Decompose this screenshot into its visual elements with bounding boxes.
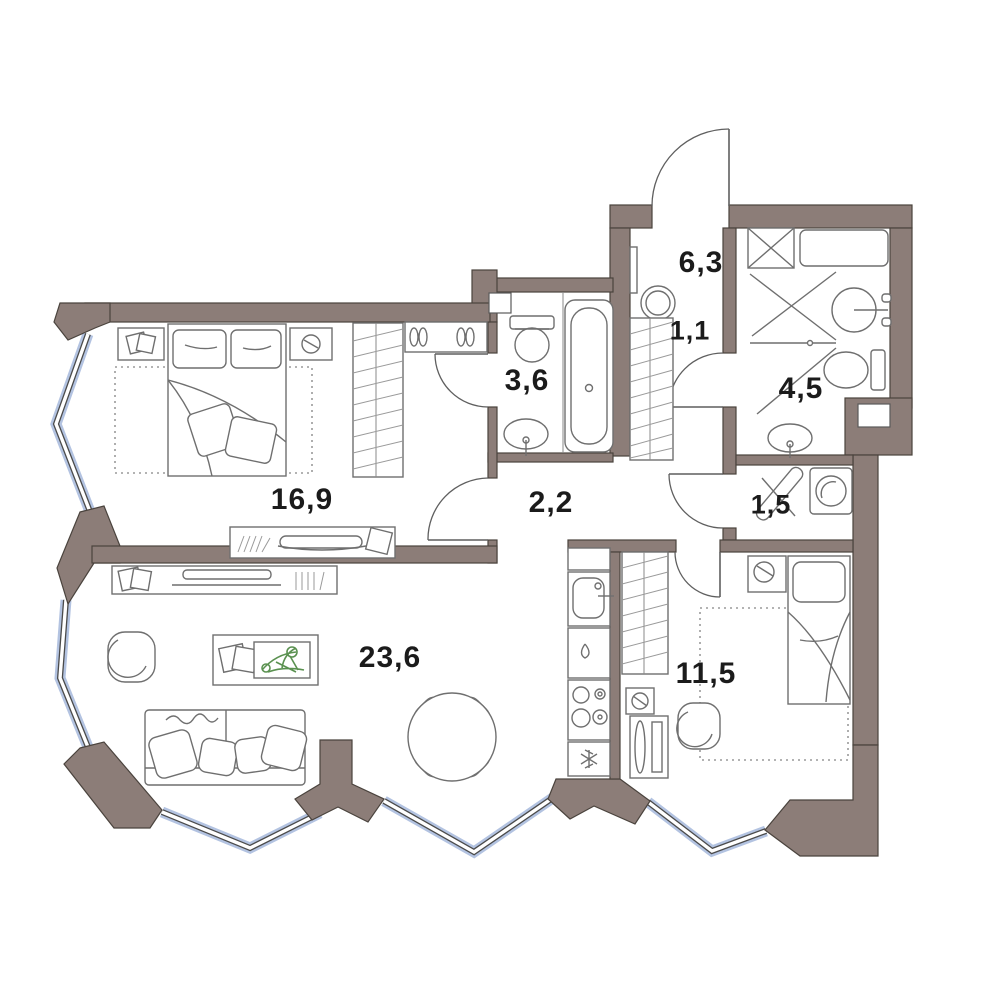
duct-shaft — [858, 404, 890, 427]
kitchen-counter — [568, 628, 610, 678]
room-area-label-laundry: 1,5 — [751, 490, 792, 521]
tv-stand — [112, 566, 337, 594]
room-area-label-shower-room: 4,5 — [779, 372, 824, 406]
laundry-sink-icon — [768, 424, 812, 458]
bathtub-icon — [565, 300, 613, 452]
entrance-door — [652, 129, 729, 206]
room-area-label-bedroom-2: 11,5 — [676, 657, 737, 691]
bathroom-sink-icon — [504, 419, 548, 456]
nightstand-right — [290, 328, 332, 360]
laundry-door — [669, 474, 723, 528]
closet-shaft — [748, 228, 794, 268]
kitchen-cabinet — [568, 548, 610, 570]
bedroom-2-door — [675, 552, 720, 597]
toilet-icon — [510, 316, 554, 362]
kitchen-units — [568, 548, 614, 776]
armchair — [108, 632, 155, 682]
mirror-icon — [630, 247, 637, 293]
fridge-icon — [568, 742, 610, 776]
desk-chair — [677, 703, 720, 749]
hall-cabinet — [800, 230, 888, 266]
shoe-shelf — [405, 322, 487, 352]
kitchen-sink — [568, 572, 614, 626]
wardrobe-bedroom-2 — [622, 552, 668, 674]
nightstand-left — [118, 328, 164, 360]
toilet-2-icon — [824, 350, 885, 390]
bathroom-door — [435, 354, 488, 407]
dressing-table — [230, 527, 395, 558]
floor-plan-page: 6,3 1,1 4,5 3,6 2,2 1,5 16,9 23,6 11,5 — [0, 0, 1000, 1000]
duct-shaft-2 — [489, 293, 511, 313]
round-sink-icon — [832, 288, 891, 332]
shower-room-door — [669, 353, 723, 407]
room-area-label-living-room: 23,6 — [359, 641, 421, 675]
room-area-label-corridor: 2,2 — [529, 486, 574, 520]
bedroom-door — [428, 478, 488, 540]
bedroom-furniture — [115, 322, 487, 558]
washing-machine-icon — [810, 468, 852, 514]
stove-icon — [568, 680, 610, 740]
coffee-table — [213, 635, 318, 685]
plant-icon — [254, 642, 310, 678]
living-room-furniture — [108, 566, 496, 785]
room-area-label-bedroom: 16,9 — [271, 483, 333, 517]
single-bed — [788, 556, 850, 704]
hall-wardrobe-unit — [630, 318, 673, 460]
room-area-label-hall-wardrobe: 1,1 — [670, 316, 711, 347]
wardrobe-bedroom — [353, 323, 403, 477]
desk — [626, 688, 668, 778]
sofa — [145, 710, 308, 785]
dining-table — [408, 692, 496, 781]
double-bed — [168, 324, 286, 476]
room-area-label-bathroom: 3,6 — [505, 364, 550, 398]
floor-plan-drawing — [0, 0, 1000, 1000]
room-area-label-hallway: 6,3 — [679, 246, 724, 280]
nightstand-2 — [748, 556, 786, 592]
